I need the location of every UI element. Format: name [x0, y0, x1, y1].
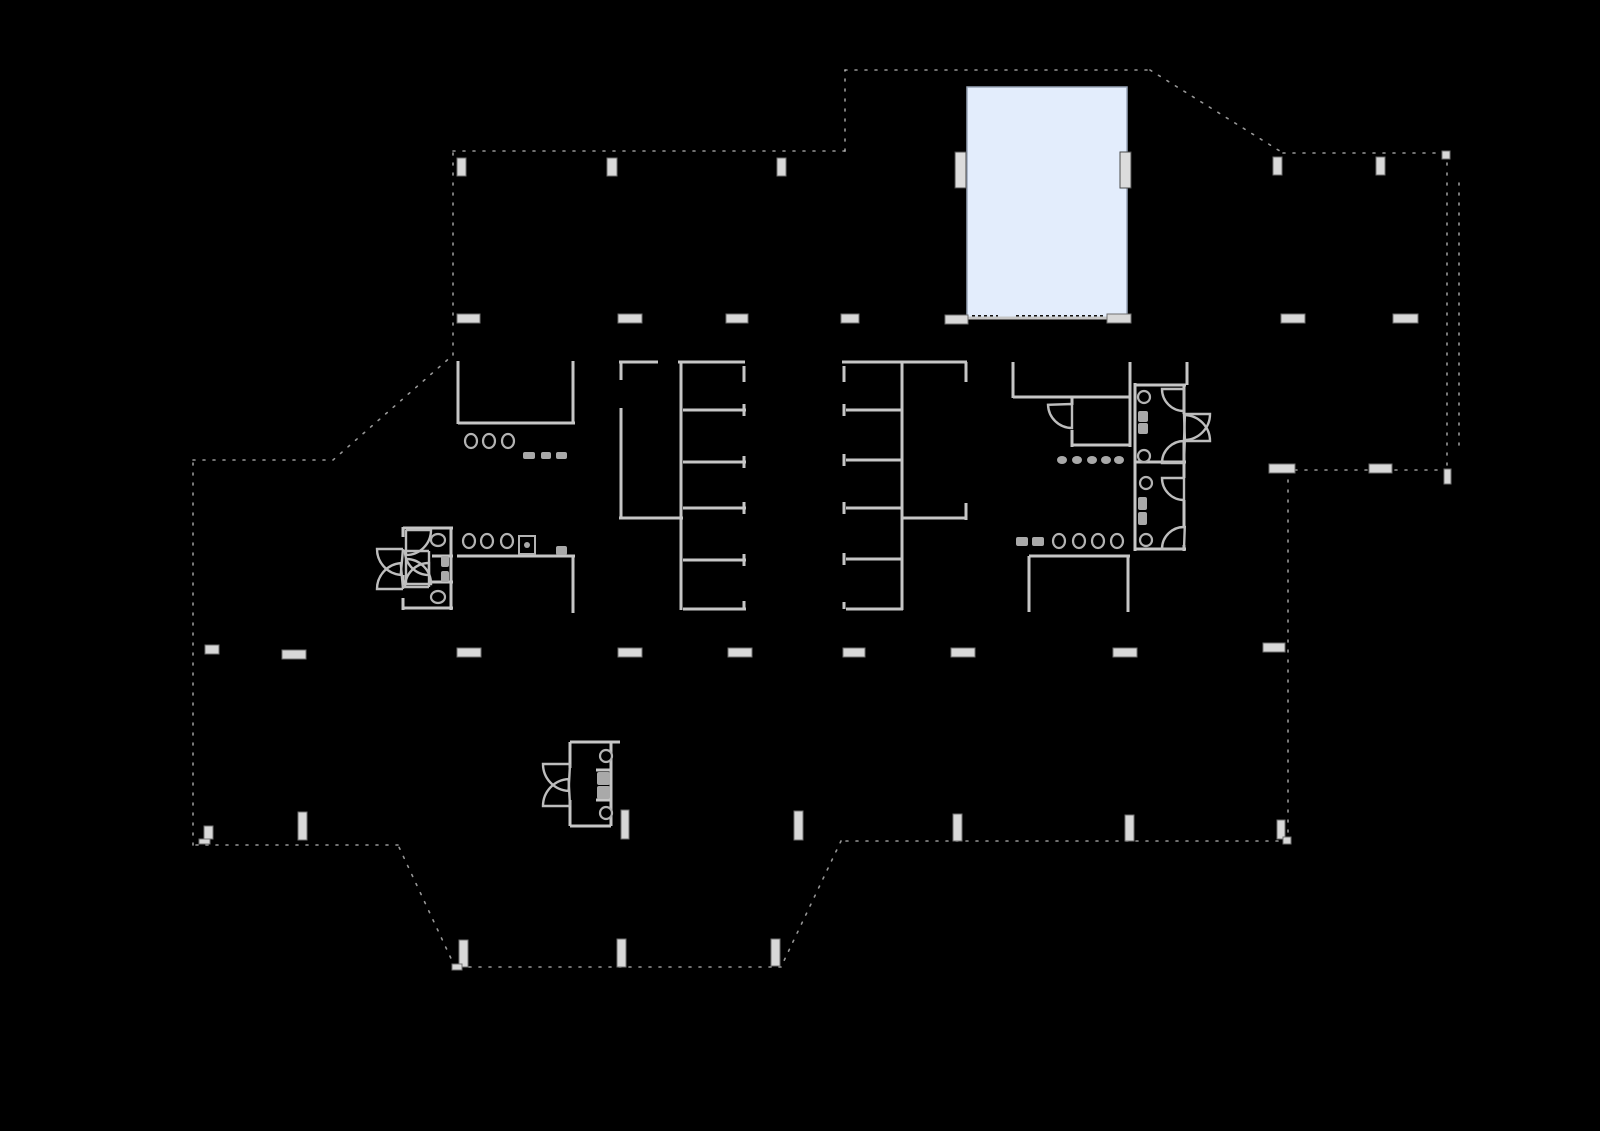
fixture-pill [1138, 497, 1147, 510]
small-fixture-dot [524, 542, 530, 548]
column-marker [457, 158, 466, 176]
toilet-fixture [502, 434, 514, 448]
toilet-fixture [1138, 450, 1150, 462]
floor-plan-svg [0, 0, 1600, 1131]
column-marker [945, 315, 968, 324]
column-marker [1442, 151, 1450, 159]
fixture-pill [441, 556, 449, 567]
toilet-fixture [1092, 534, 1104, 548]
column-marker [204, 826, 213, 839]
toilet-fixture [600, 750, 612, 762]
door-swing-arc [1162, 527, 1185, 549]
column-marker [771, 939, 780, 966]
toilet-fixture [431, 591, 445, 603]
column-marker [1277, 820, 1285, 839]
column-marker [1369, 464, 1392, 473]
fixture-pill [441, 571, 449, 582]
door-swing-arc [1162, 389, 1184, 411]
fixture-pill [556, 546, 567, 555]
small-fixture-dot [1114, 456, 1124, 464]
column-marker [1283, 837, 1291, 844]
column-marker [617, 939, 626, 967]
fixture-pill [1016, 537, 1028, 546]
column-marker [841, 314, 859, 323]
toilet-fixture [1073, 534, 1085, 548]
plan-container [0, 0, 1600, 1131]
toilet-fixture [463, 534, 475, 548]
small-fixture-dot [1057, 456, 1067, 464]
highlighted-room[interactable] [967, 87, 1127, 318]
column-marker [298, 812, 307, 840]
column-marker [1444, 469, 1451, 484]
door-swing-arc [377, 549, 403, 575]
small-fixture-dot [1087, 456, 1097, 464]
column-marker [457, 314, 480, 323]
column-marker [1393, 314, 1418, 323]
toilet-fixture [1140, 477, 1152, 489]
toilet-fixture [1140, 534, 1152, 546]
column-marker [282, 650, 306, 659]
column-marker [1107, 314, 1131, 323]
door-panel [1120, 152, 1131, 188]
door-swing-arc [377, 563, 403, 589]
column-marker [1273, 157, 1282, 175]
fixture-pill [556, 452, 567, 459]
toilet-fixture [481, 534, 493, 548]
toilet-fixture [1053, 534, 1065, 548]
fixture-pill [1138, 512, 1147, 525]
column-marker [205, 645, 219, 654]
fixture-pill [523, 452, 535, 459]
column-marker [728, 648, 752, 657]
toilet-fixture [501, 534, 513, 548]
toilet-fixture [431, 534, 445, 546]
toilet-fixture [1111, 534, 1123, 548]
fixture-pill [597, 786, 610, 799]
column-marker [618, 648, 642, 657]
column-marker [618, 314, 642, 323]
fixture-pill [1032, 537, 1044, 546]
door-swing-arc [543, 779, 570, 806]
column-marker [621, 810, 629, 839]
toilet-fixture [1138, 391, 1150, 403]
door-swing-arc [1162, 478, 1184, 500]
column-marker [1125, 815, 1134, 841]
column-marker [1269, 464, 1295, 473]
column-marker [457, 648, 481, 657]
column-marker [1281, 314, 1305, 323]
boundary-line [781, 841, 841, 967]
fixture-pill [541, 452, 551, 459]
column-marker [726, 314, 748, 323]
boundary-line [398, 845, 455, 967]
column-marker [607, 158, 617, 176]
fixture-pill [1138, 411, 1148, 422]
column-marker [1376, 157, 1385, 175]
toilet-fixture [465, 434, 477, 448]
column-marker [951, 648, 975, 657]
boundary-line [1150, 70, 1283, 153]
door-panel [955, 152, 966, 188]
door-swing-arc [1162, 441, 1185, 463]
boundary-line [333, 355, 453, 460]
column-marker [1113, 648, 1137, 657]
column-marker [452, 964, 462, 970]
column-marker [459, 940, 468, 967]
door-swing-arc [1048, 404, 1072, 428]
small-fixture-dot [1072, 456, 1082, 464]
toilet-fixture [483, 434, 495, 448]
column-marker [843, 648, 865, 657]
fixture-pill [1138, 423, 1148, 434]
door-swing-arc [543, 764, 570, 791]
column-marker [794, 811, 803, 840]
column-marker [1263, 643, 1285, 652]
column-marker [199, 839, 210, 844]
fixture-pill [597, 772, 610, 785]
column-marker [953, 814, 962, 841]
small-fixture-dot [1101, 456, 1111, 464]
column-marker [777, 158, 786, 176]
toilet-fixture [600, 807, 612, 819]
